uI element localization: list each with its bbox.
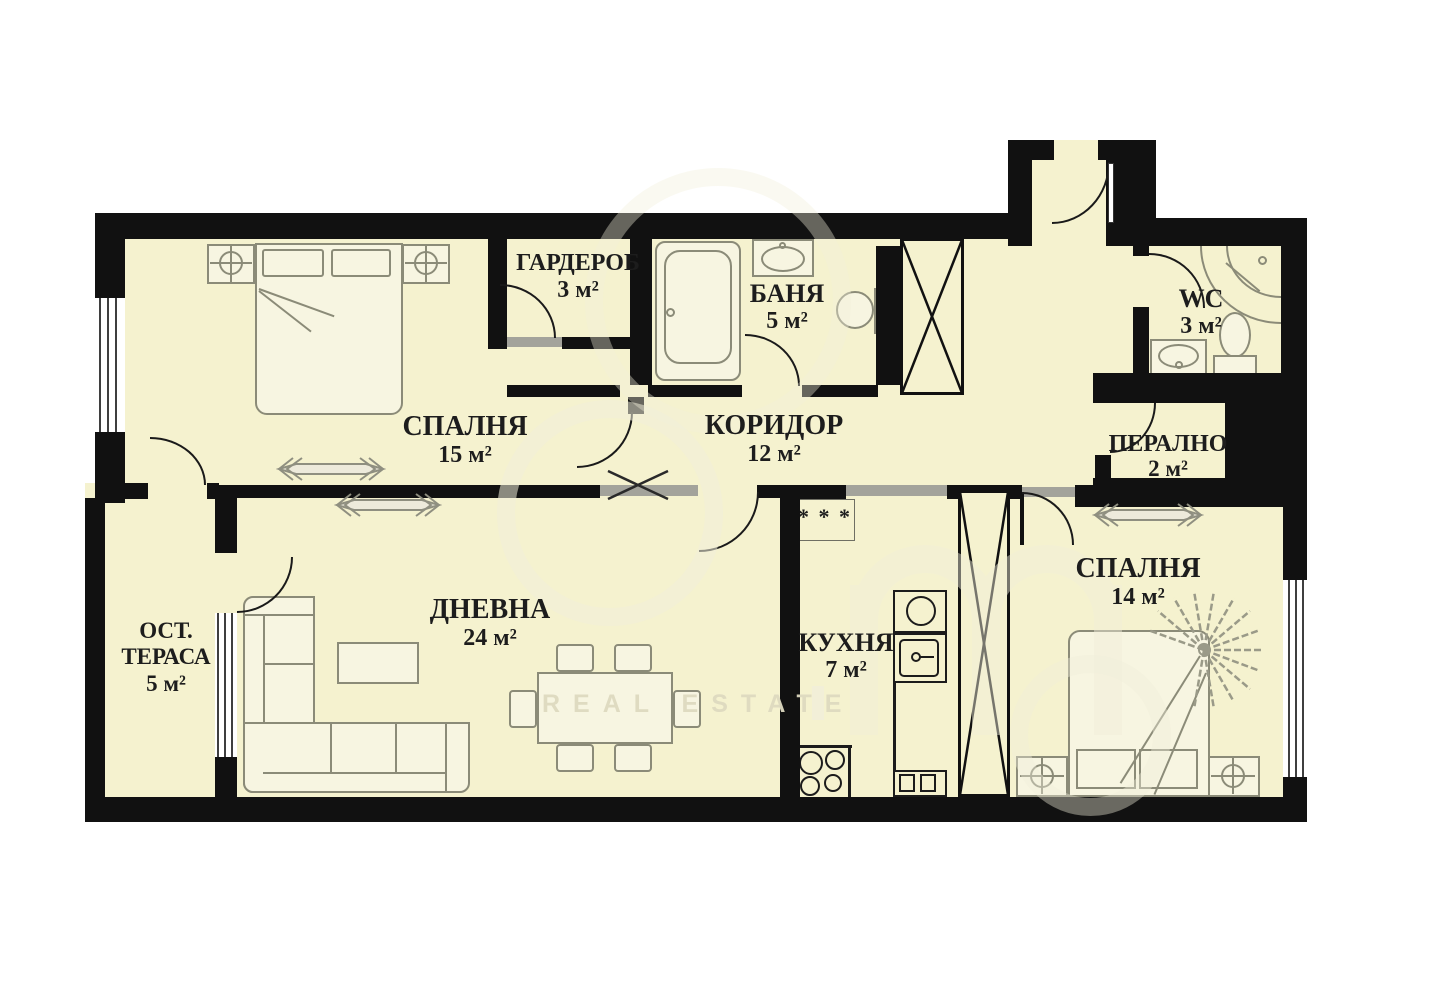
wall xyxy=(1008,140,1054,160)
bathtub-inner xyxy=(664,250,732,364)
wall xyxy=(95,483,148,499)
wall xyxy=(780,485,800,797)
sofa-line xyxy=(245,614,313,616)
wall xyxy=(876,246,902,385)
wall xyxy=(1133,246,1149,256)
window-line xyxy=(1295,580,1297,777)
wall xyxy=(1281,246,1307,386)
room-label-wardrobe: ГАРДЕРОБ 3 м² xyxy=(516,250,640,304)
shaft-x-symbol xyxy=(958,490,1010,797)
room-label-living: ДНЕВНА 24 м² xyxy=(430,594,550,652)
double-arrow-symbol xyxy=(334,492,442,518)
shaft-x-symbol xyxy=(900,238,964,395)
boiler-niche: * * * xyxy=(795,499,855,541)
window-line xyxy=(1302,580,1304,777)
cross-mark xyxy=(602,468,674,502)
chair xyxy=(556,744,594,772)
room-area: 15 м² xyxy=(402,442,527,469)
cabinet-drawer xyxy=(899,774,915,792)
room-area: 14 м² xyxy=(1075,584,1200,611)
sofa-line xyxy=(395,724,397,772)
wall xyxy=(1133,307,1149,377)
room-name: ПЕРАЛНО xyxy=(1109,432,1228,457)
window-line xyxy=(115,298,117,432)
room-area: 2 м² xyxy=(1109,457,1228,481)
bed-footboard xyxy=(1139,749,1198,789)
room-name: КОРИДОР xyxy=(705,410,843,441)
wall xyxy=(802,385,878,397)
room-area: 3 м² xyxy=(516,277,640,304)
room-label-kitchen: КУХНЯ 7 м² xyxy=(798,628,893,684)
chair xyxy=(509,690,537,728)
room-area: 5 м² xyxy=(121,671,210,697)
wall xyxy=(1225,385,1307,507)
room-name: ТЕРАСА xyxy=(121,644,210,670)
room-label-corridor: КОРИДОР 12 м² xyxy=(705,410,843,468)
sofa-line xyxy=(330,724,332,772)
room-name: БАНЯ xyxy=(750,279,825,308)
chair xyxy=(614,744,652,772)
sofa-line xyxy=(263,772,445,774)
opening-kitchen xyxy=(846,485,947,496)
room-label-bedroom15: СПАЛНЯ 15 м² xyxy=(402,411,527,469)
room-label-laundry: ПЕРАЛНО 2 м² xyxy=(1109,432,1228,481)
wall xyxy=(1130,218,1307,246)
wall xyxy=(648,385,742,397)
coffee-table xyxy=(337,642,419,684)
room-area: 3 м² xyxy=(1179,313,1224,340)
chair xyxy=(556,644,594,672)
window-line xyxy=(99,298,101,432)
room-area: 12 м² xyxy=(705,441,843,468)
pillow xyxy=(262,249,324,277)
window-line xyxy=(224,613,226,757)
chair xyxy=(614,644,652,672)
lamp-cross xyxy=(1232,758,1234,794)
faucet-icon xyxy=(1175,361,1183,369)
room-label-terrace: ОСТ. ТЕРАСА 5 м² xyxy=(121,618,210,697)
boiler-symbol: * * * xyxy=(798,504,852,529)
room-label-wc: WC 3 м² xyxy=(1179,284,1224,340)
room-area: 24 м² xyxy=(430,625,550,652)
sofa xyxy=(243,722,470,793)
wall xyxy=(488,337,500,349)
room-name: ГАРДЕРОБ xyxy=(516,250,640,277)
lamp-cross xyxy=(230,246,232,282)
room-name: СПАЛНЯ xyxy=(402,411,527,442)
faucet-line xyxy=(920,656,934,658)
wall xyxy=(95,213,1015,239)
lamp-cross xyxy=(1041,758,1043,794)
window-line xyxy=(107,298,109,432)
room-name: WC xyxy=(1179,284,1224,313)
double-arrow-symbol xyxy=(276,456,386,482)
window-line xyxy=(217,613,219,757)
room-name: ДНЕВНА xyxy=(430,594,550,625)
room-name: ОСТ. xyxy=(121,618,210,644)
hob-circle xyxy=(906,596,936,626)
wall xyxy=(85,498,105,822)
opening-wardrobe xyxy=(500,337,562,347)
counter-line xyxy=(795,745,852,748)
toilet-bowl xyxy=(836,291,874,329)
chair xyxy=(673,690,701,728)
pillow xyxy=(331,249,391,277)
room-area: 5 м² xyxy=(750,308,825,335)
wall xyxy=(215,757,237,797)
shower-head-icon xyxy=(1258,256,1267,265)
cabinet-drawer xyxy=(920,774,936,792)
wall xyxy=(85,797,1307,822)
room-label-bathroom: БАНЯ 5 м² xyxy=(750,279,825,335)
sofa-line xyxy=(263,663,313,665)
wall xyxy=(507,385,620,397)
wall xyxy=(800,485,846,499)
lamp-cross xyxy=(425,246,427,282)
room-area: 7 м² xyxy=(798,657,893,684)
double-arrow-symbol xyxy=(1092,502,1204,528)
sofa-line xyxy=(263,614,265,724)
stove-burner xyxy=(799,751,823,775)
stove-burner xyxy=(800,776,820,796)
room-label-bedroom14: СПАЛНЯ 14 м² xyxy=(1075,553,1200,611)
sink-basin xyxy=(761,246,805,272)
window-line xyxy=(231,613,233,757)
room-name: СПАЛНЯ xyxy=(1075,553,1200,584)
room-name: КУХНЯ xyxy=(798,628,893,657)
wall xyxy=(215,498,237,553)
toilet-bowl xyxy=(1219,312,1251,358)
faucet-icon xyxy=(779,242,786,249)
door-leaf xyxy=(1108,163,1114,223)
toilet-tank xyxy=(1213,355,1257,375)
stove-burner xyxy=(825,750,845,770)
stove-burner xyxy=(824,774,842,792)
sofa-line xyxy=(445,724,447,791)
dining-table xyxy=(537,672,673,744)
window-line xyxy=(1288,580,1290,777)
counter-line xyxy=(848,745,851,797)
drain-icon xyxy=(666,308,675,317)
floor-plan: REAL ESTATE xyxy=(0,0,1445,1000)
